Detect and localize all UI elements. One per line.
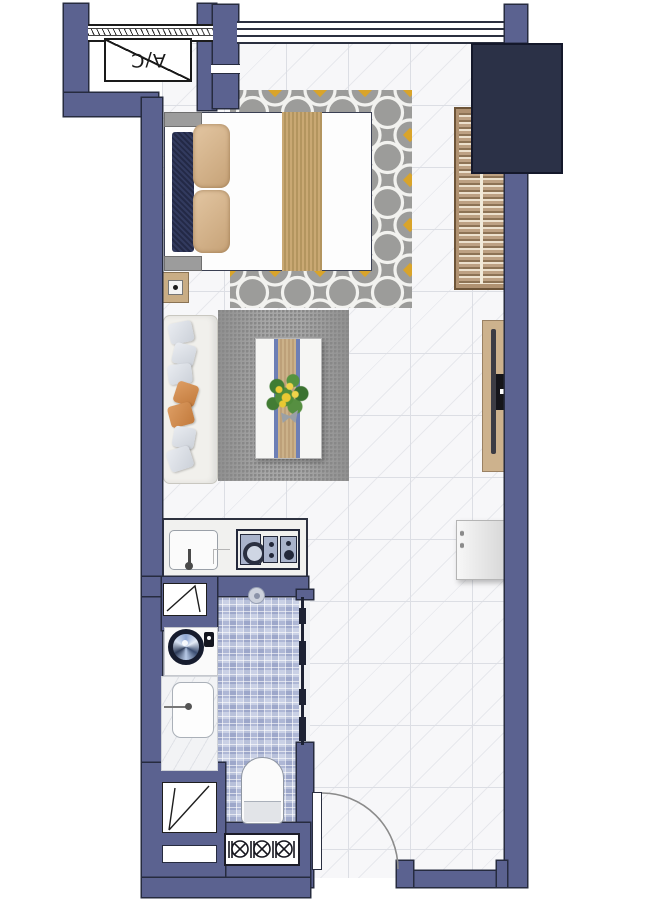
burner-module-large (240, 534, 261, 565)
service-shaft-box (473, 45, 561, 172)
washer-drum-icon (168, 629, 204, 665)
bottom-left-niche (162, 845, 217, 863)
bed-pillow-left (193, 124, 230, 188)
bed-pillow-right (193, 190, 230, 253)
vent-grille (224, 833, 300, 866)
bed-runner-band (282, 112, 322, 271)
sofa (163, 315, 218, 484)
wall-bath-stub-top (297, 590, 313, 599)
kitchen-faucet-base (185, 562, 193, 570)
partition-panel-mark (299, 717, 306, 741)
burner-dot (286, 541, 291, 546)
wall-northwest-column (213, 5, 238, 108)
media-box-dot (500, 389, 504, 394)
north-window (237, 21, 505, 44)
sofa-pillow-orange (167, 401, 196, 428)
lamp-bulb-dot (173, 285, 178, 290)
sofa-pillow (167, 320, 195, 346)
bed-navy-throw (172, 132, 194, 252)
ac-unit-box: A/C (104, 38, 192, 82)
bathroom-sink-basin (172, 682, 214, 738)
plant-flowers-icon (270, 380, 306, 412)
shower-drain-dot (254, 593, 260, 599)
entry-door-leaf (312, 792, 322, 870)
burner-dot (269, 553, 274, 558)
louver-hatch (88, 28, 213, 36)
toilet-seat-band (244, 801, 281, 822)
partition-panel-mark (299, 608, 306, 624)
burner-dot-large (284, 550, 294, 560)
refrigerator (456, 520, 508, 580)
wall-door-jamb-left (397, 861, 413, 887)
floor-plan-canvas: A/C (0, 0, 653, 902)
bed-headboard-cap-top (164, 112, 202, 127)
kitchen-faucet-icon (188, 549, 191, 563)
wall-bottom-bathroom (142, 878, 310, 897)
wall-slit (211, 64, 240, 74)
washer-drum-glint (182, 640, 188, 646)
bathroom-faucet-handle (185, 703, 192, 710)
washer-control-panel (204, 632, 214, 647)
counter-detail-lines (213, 549, 230, 564)
bath-closet-top (163, 583, 207, 616)
shower-drain-icon (248, 587, 265, 604)
burner-module-right (280, 536, 297, 563)
washer-control-dot (207, 636, 211, 640)
partition-panel-mark (299, 641, 306, 665)
wall-northeast-column (505, 5, 527, 45)
wall-bottom-main (397, 871, 507, 887)
ac-label: A/C (106, 40, 190, 80)
kitchen-sink (169, 530, 218, 570)
refrigerator-handle (460, 529, 464, 551)
table-lamp-icon (168, 280, 183, 295)
bottom-left-closet (162, 782, 217, 833)
bed-headboard-cap-bottom (164, 256, 202, 271)
burner-dot (269, 542, 274, 547)
burner-module-mid (263, 536, 278, 563)
partition-panel-mark (299, 689, 306, 705)
nightstand (162, 272, 189, 303)
cooktop (236, 529, 300, 570)
wall-door-jamb-right (497, 861, 507, 887)
